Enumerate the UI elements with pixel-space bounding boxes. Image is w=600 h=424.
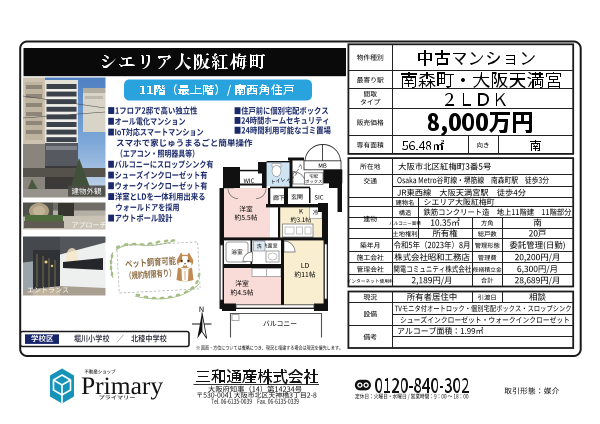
svg-text:Primary: Primary (81, 371, 163, 400)
